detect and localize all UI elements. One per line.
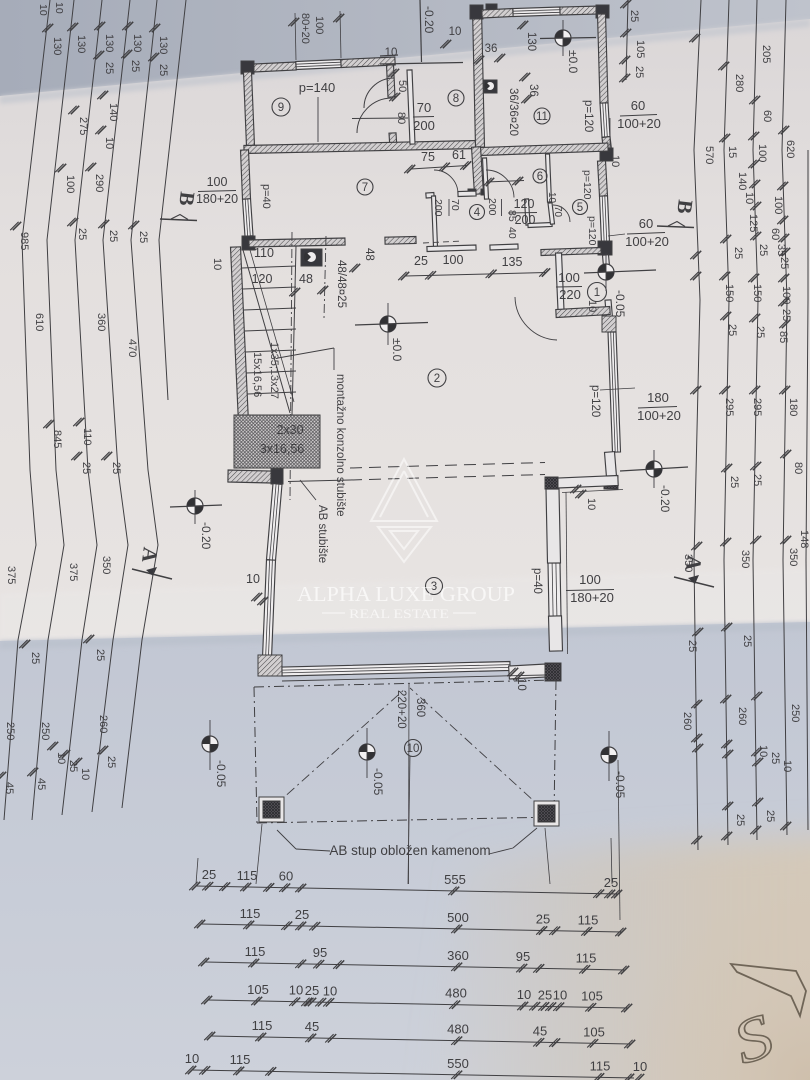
svg-text:180+20: 180+20 <box>196 192 238 206</box>
svg-text:480: 480 <box>447 1022 469 1037</box>
svg-text:10: 10 <box>743 192 755 204</box>
svg-text:60: 60 <box>769 228 781 240</box>
svg-text:10: 10 <box>633 1059 647 1074</box>
svg-text:10: 10 <box>385 47 398 59</box>
svg-text:25: 25 <box>741 635 753 647</box>
svg-text:10: 10 <box>585 498 597 510</box>
svg-text:25: 25 <box>757 244 769 256</box>
svg-text:220+20: 220+20 <box>395 690 407 729</box>
svg-text:25: 25 <box>764 810 776 822</box>
svg-text:25: 25 <box>295 907 309 922</box>
svg-text:180: 180 <box>647 390 669 405</box>
svg-text:100: 100 <box>443 253 464 267</box>
svg-text:-0.20: -0.20 <box>422 6 436 34</box>
svg-text:60: 60 <box>631 98 645 113</box>
svg-text:25: 25 <box>80 462 92 474</box>
svg-text:80+20: 80+20 <box>299 13 311 44</box>
svg-text:61: 61 <box>452 148 466 162</box>
svg-text:25: 25 <box>110 462 122 474</box>
svg-text:B: B <box>672 198 698 215</box>
svg-text:25: 25 <box>129 60 141 72</box>
svg-text:105: 105 <box>581 988 603 1003</box>
svg-text:375: 375 <box>67 563 79 581</box>
svg-text:45: 45 <box>35 778 47 790</box>
svg-text:10: 10 <box>517 987 531 1002</box>
svg-text:80: 80 <box>792 462 804 474</box>
svg-text:±0.0: ±0.0 <box>390 338 404 362</box>
svg-text:4: 4 <box>474 207 481 219</box>
svg-text:35: 35 <box>775 244 787 256</box>
svg-text:115: 115 <box>230 1052 251 1067</box>
svg-text:-0.05: -0.05 <box>371 768 385 796</box>
svg-text:350: 350 <box>100 556 112 574</box>
svg-text:25: 25 <box>734 814 746 826</box>
svg-text:25: 25 <box>726 324 738 336</box>
svg-text:10: 10 <box>609 155 621 167</box>
svg-text:470: 470 <box>126 339 138 357</box>
svg-text:130: 130 <box>157 36 169 54</box>
svg-text:205: 205 <box>760 45 772 63</box>
svg-text:10: 10 <box>449 26 462 38</box>
svg-text:550: 550 <box>447 1056 469 1071</box>
svg-text:1: 1 <box>594 287 600 299</box>
svg-text:200: 200 <box>515 213 536 227</box>
svg-text:140: 140 <box>107 103 119 121</box>
svg-text:25: 25 <box>29 652 41 664</box>
svg-text:100+20: 100+20 <box>617 116 661 131</box>
svg-text:25: 25 <box>686 640 698 652</box>
svg-text:25: 25 <box>628 10 640 22</box>
svg-text:95: 95 <box>313 945 327 960</box>
svg-text:130: 130 <box>131 34 143 52</box>
svg-text:10: 10 <box>103 137 115 149</box>
svg-text:115: 115 <box>578 912 599 927</box>
svg-text:135: 135 <box>502 255 523 269</box>
svg-text:115: 115 <box>240 906 261 921</box>
svg-text:105: 105 <box>634 40 646 58</box>
svg-text:-0.20: -0.20 <box>199 522 213 550</box>
svg-text:350: 350 <box>682 554 694 572</box>
svg-text:25: 25 <box>105 756 117 768</box>
svg-text:25: 25 <box>780 309 792 321</box>
svg-text:60: 60 <box>761 110 773 122</box>
svg-text:130: 130 <box>75 35 87 53</box>
svg-text:130: 130 <box>103 34 115 52</box>
svg-text:ALPHA LUXE GROUP: ALPHA LUXE GROUP <box>297 582 515 606</box>
svg-text:10: 10 <box>757 745 769 757</box>
svg-text:610: 610 <box>33 313 45 331</box>
svg-text:100: 100 <box>207 175 228 189</box>
svg-text:570: 570 <box>703 146 715 164</box>
svg-text:360: 360 <box>95 313 107 331</box>
svg-text:295: 295 <box>723 398 735 416</box>
svg-text:48: 48 <box>363 248 375 261</box>
svg-text:120: 120 <box>252 272 273 286</box>
svg-text:115: 115 <box>576 950 597 965</box>
svg-text:100: 100 <box>64 175 76 193</box>
svg-text:260: 260 <box>681 712 693 730</box>
svg-text:100: 100 <box>772 196 784 214</box>
svg-text:p=40: p=40 <box>260 184 272 209</box>
svg-text:45: 45 <box>533 1023 547 1038</box>
svg-text:10: 10 <box>211 258 223 270</box>
svg-text:10: 10 <box>79 768 91 780</box>
svg-text:280: 280 <box>733 74 745 92</box>
svg-text:25: 25 <box>728 476 740 488</box>
svg-text:p=120: p=120 <box>581 170 593 200</box>
svg-text:48: 48 <box>299 272 313 286</box>
svg-text:25: 25 <box>778 257 790 269</box>
svg-text:360: 360 <box>447 948 469 963</box>
svg-text:10: 10 <box>53 2 65 14</box>
svg-text:130: 130 <box>525 32 537 51</box>
svg-text:25: 25 <box>751 474 763 486</box>
svg-text:150: 150 <box>723 284 735 302</box>
svg-text:45: 45 <box>305 1019 319 1034</box>
svg-text:2: 2 <box>434 373 440 385</box>
svg-text:-0.05: -0.05 <box>613 290 627 318</box>
svg-text:7: 7 <box>362 182 368 194</box>
svg-text:115: 115 <box>252 1018 273 1033</box>
svg-text:360: 360 <box>414 698 426 717</box>
svg-text:70: 70 <box>417 100 431 115</box>
svg-text:3x16,56: 3x16,56 <box>260 442 305 456</box>
svg-text:620: 620 <box>784 140 796 158</box>
svg-text:-0.05: -0.05 <box>214 760 228 788</box>
svg-text:25: 25 <box>305 983 319 998</box>
svg-text:AB stup obložen kamenom: AB stup obložen kamenom <box>329 843 490 858</box>
svg-text:120: 120 <box>514 197 535 211</box>
svg-text:25: 25 <box>67 760 79 772</box>
svg-text:9: 9 <box>278 102 284 114</box>
svg-text:180+20: 180+20 <box>570 590 614 605</box>
svg-text:290: 290 <box>93 174 105 192</box>
svg-text:110: 110 <box>81 428 93 446</box>
svg-text:10: 10 <box>55 752 67 764</box>
svg-text:985: 985 <box>18 232 30 250</box>
svg-text:10: 10 <box>289 983 303 998</box>
svg-text:845: 845 <box>51 430 63 448</box>
svg-text:48/48¤25: 48/48¤25 <box>335 260 347 308</box>
svg-text:REAL ESTATE: REAL ESTATE <box>349 606 449 621</box>
svg-text:140: 140 <box>736 172 748 190</box>
svg-text:295: 295 <box>751 398 763 416</box>
svg-text:25: 25 <box>538 987 552 1002</box>
svg-text:10: 10 <box>37 4 49 16</box>
svg-text:25: 25 <box>76 228 88 240</box>
svg-text:8: 8 <box>453 93 459 105</box>
svg-text:100+20: 100+20 <box>637 408 681 423</box>
svg-text:200: 200 <box>486 198 498 216</box>
svg-text:100: 100 <box>756 144 768 162</box>
svg-text:25: 25 <box>769 752 781 764</box>
svg-text:2x30: 2x30 <box>276 423 303 437</box>
svg-text:50: 50 <box>396 80 408 92</box>
svg-text:75: 75 <box>421 150 435 164</box>
svg-text:25: 25 <box>137 231 149 243</box>
svg-text:10: 10 <box>546 192 557 204</box>
svg-text:250: 250 <box>4 722 16 740</box>
svg-text:200: 200 <box>413 118 435 133</box>
svg-text:260: 260 <box>736 707 748 725</box>
svg-text:275: 275 <box>77 117 89 135</box>
svg-text:25: 25 <box>107 230 119 242</box>
svg-text:70: 70 <box>552 206 563 218</box>
svg-text:45: 45 <box>3 782 15 794</box>
svg-text:148: 148 <box>798 530 810 548</box>
svg-text:60: 60 <box>279 869 293 884</box>
svg-text:260: 260 <box>97 715 109 733</box>
svg-text:105: 105 <box>247 982 269 997</box>
svg-text:10: 10 <box>246 572 260 586</box>
svg-text:1x35;13x27: 1x35;13x27 <box>268 342 280 399</box>
svg-text:480: 480 <box>445 986 467 1001</box>
svg-text:100: 100 <box>780 286 792 304</box>
svg-text:p=120: p=120 <box>589 385 601 417</box>
svg-text:-0.05: -0.05 <box>613 771 627 799</box>
svg-text:-0.20: -0.20 <box>658 485 672 513</box>
svg-text:375: 375 <box>5 566 17 584</box>
svg-text:36: 36 <box>485 43 498 55</box>
svg-text:36/36¤20: 36/36¤20 <box>507 88 519 136</box>
svg-text:10: 10 <box>323 983 337 998</box>
svg-text:125: 125 <box>747 214 759 232</box>
svg-text:100: 100 <box>579 572 601 587</box>
svg-text:15x16,56: 15x16,56 <box>251 352 263 397</box>
svg-text:montažno konzolno stubište: montažno konzolno stubište <box>334 374 346 517</box>
svg-text:500: 500 <box>447 910 469 925</box>
svg-text:p=120: p=120 <box>586 216 598 246</box>
svg-text:100: 100 <box>313 16 325 34</box>
svg-text:115: 115 <box>590 1058 611 1073</box>
svg-text:105: 105 <box>583 1024 605 1039</box>
svg-text:25: 25 <box>202 867 216 882</box>
svg-text:25: 25 <box>414 254 428 268</box>
svg-text:115: 115 <box>237 868 258 883</box>
svg-text:200: 200 <box>432 199 444 217</box>
svg-text:25: 25 <box>536 911 550 926</box>
svg-text:70: 70 <box>449 199 461 211</box>
svg-text:10: 10 <box>781 760 793 772</box>
svg-text:60: 60 <box>639 216 653 231</box>
svg-text:130: 130 <box>51 37 63 55</box>
svg-text:AB stubište: AB stubište <box>316 505 328 563</box>
svg-text:100+20: 100+20 <box>625 234 669 249</box>
svg-text:220: 220 <box>559 287 581 302</box>
svg-text:350: 350 <box>739 550 751 568</box>
svg-text:180: 180 <box>787 398 799 416</box>
svg-text:250: 250 <box>39 722 51 740</box>
svg-text:555: 555 <box>444 872 466 887</box>
svg-text:11: 11 <box>536 111 548 123</box>
svg-text:6: 6 <box>537 171 543 183</box>
svg-text:350: 350 <box>787 548 799 566</box>
svg-text:25: 25 <box>732 247 744 259</box>
svg-text:p=40: p=40 <box>531 568 543 594</box>
svg-text:85: 85 <box>777 331 789 343</box>
svg-text:25: 25 <box>754 326 766 338</box>
svg-text:10: 10 <box>185 1051 199 1066</box>
svg-text:25: 25 <box>157 64 169 76</box>
svg-text:110: 110 <box>254 246 274 260</box>
svg-text:±0.0: ±0.0 <box>566 50 580 74</box>
svg-text:250: 250 <box>789 704 801 722</box>
svg-text:25: 25 <box>94 649 106 661</box>
svg-text:15: 15 <box>726 146 738 158</box>
svg-text:115: 115 <box>245 944 266 959</box>
svg-text:25: 25 <box>103 62 115 74</box>
svg-text:100: 100 <box>558 270 580 285</box>
svg-text:150: 150 <box>751 284 763 302</box>
svg-text:80: 80 <box>395 112 407 124</box>
svg-text:p=120: p=120 <box>582 100 594 132</box>
svg-text:25: 25 <box>604 875 618 890</box>
svg-text:95: 95 <box>516 949 530 964</box>
svg-text:40: 40 <box>506 227 518 239</box>
svg-text:25: 25 <box>633 66 645 78</box>
svg-text:10: 10 <box>553 988 567 1003</box>
svg-text:p=140: p=140 <box>299 80 336 95</box>
svg-text:5: 5 <box>577 202 583 214</box>
